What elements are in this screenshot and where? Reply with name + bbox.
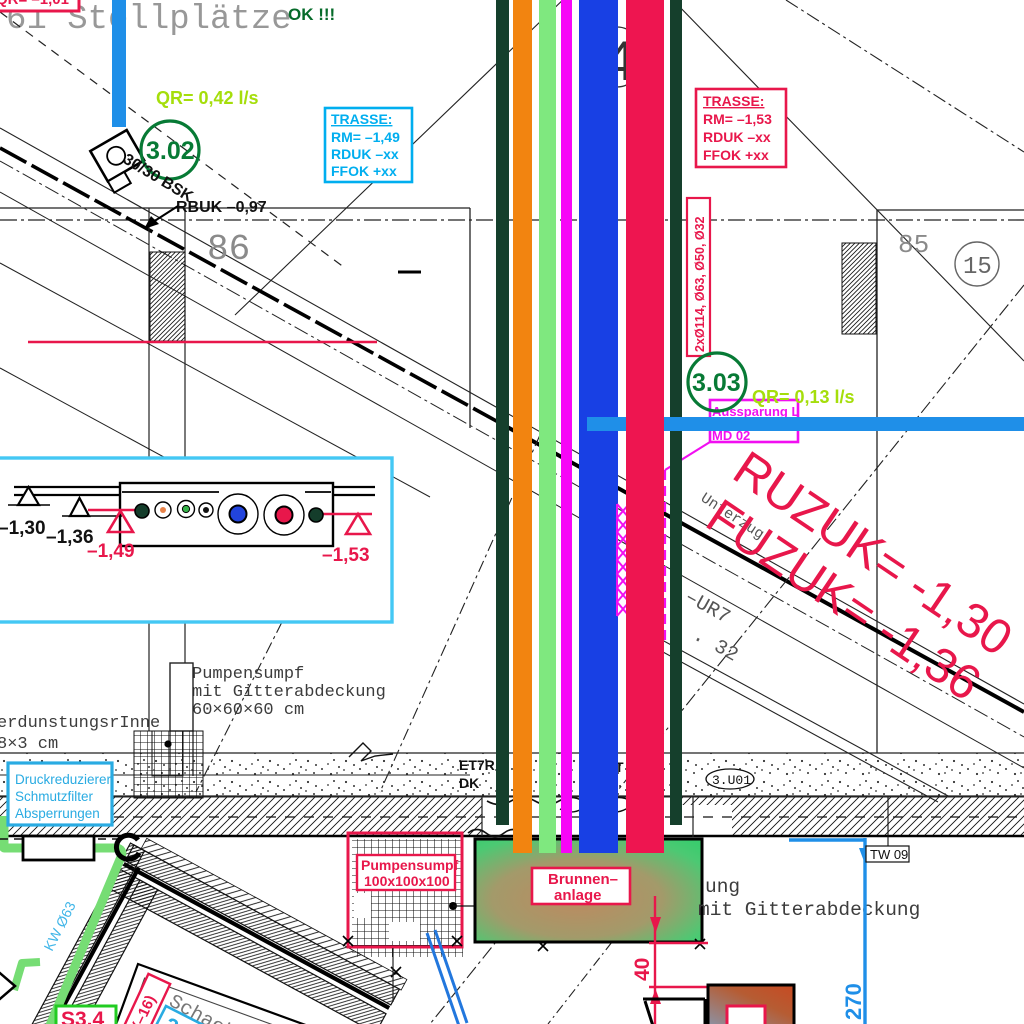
svg-text:TRASSE:: TRASSE: [331, 111, 392, 127]
svg-text:3.02: 3.02 [146, 137, 195, 165]
svg-text:–1,49: –1,49 [87, 541, 135, 562]
svg-text:RM= –1,53: RM= –1,53 [703, 111, 772, 127]
svg-text:–1,53: –1,53 [322, 545, 370, 566]
svg-text:QR= 0,42 l/s: QR= 0,42 l/s [156, 88, 259, 108]
svg-text:FFOK +xx: FFOK +xx [331, 163, 397, 179]
svg-text:TRASSE:: TRASSE: [703, 93, 764, 109]
svg-text:Brunnen–: Brunnen– [548, 871, 618, 888]
svg-text:3.U01: 3.U01 [712, 773, 751, 788]
svg-text:anlage: anlage [554, 887, 602, 904]
svg-text:Pumpensumpf: Pumpensumpf [361, 857, 459, 873]
svg-text:TW 09: TW 09 [870, 847, 908, 862]
svg-text:270: 270 [841, 983, 866, 1020]
svg-text:FFOK +xx: FFOK +xx [703, 147, 769, 163]
svg-text:Pumpensumpf: Pumpensumpf [192, 665, 304, 684]
svg-text:mit Gitterabdeckung: mit Gitterabdeckung [192, 683, 386, 702]
svg-text:erdunstungsrInne: erdunstungsrInne [0, 714, 160, 733]
svg-text:RDUK –xx: RDUK –xx [703, 129, 771, 145]
svg-text:S3.4: S3.4 [61, 1008, 105, 1024]
svg-text:15: 15 [963, 254, 992, 281]
svg-text:DK: DK [459, 775, 479, 791]
svg-text:RBUK –0,97: RBUK –0,97 [176, 199, 267, 216]
svg-text:RDUK –xx: RDUK –xx [331, 146, 399, 162]
svg-text:100x100x100: 100x100x100 [364, 873, 450, 889]
svg-text:Druckreduzierer: Druckreduzierer [15, 772, 112, 787]
svg-text:2xØ114, Ø63, Ø50, Ø32: 2xØ114, Ø63, Ø50, Ø32 [693, 216, 707, 352]
svg-text:Absperrungen: Absperrungen [15, 806, 100, 821]
svg-text:8×3 cm: 8×3 cm [0, 735, 58, 754]
svg-text:OK !!!: OK !!! [288, 5, 335, 24]
svg-text:QR= 0,13 l/s: QR= 0,13 l/s [752, 387, 855, 407]
svg-text:86: 86 [207, 229, 250, 270]
svg-text:–1,30: –1,30 [0, 518, 46, 539]
svg-text:85: 85 [898, 230, 929, 260]
svg-text:40: 40 [631, 958, 654, 981]
svg-text:3.03: 3.03 [692, 369, 741, 397]
svg-text:60×60×60 cm: 60×60×60 cm [192, 701, 304, 720]
svg-text:RM= –1,49: RM= –1,49 [331, 129, 400, 145]
svg-text:mit Gitterabdeckung: mit Gitterabdeckung [698, 899, 920, 921]
svg-text:Schmutzfilter: Schmutzfilter [15, 789, 94, 804]
svg-text:QR= –1,01: QR= –1,01 [0, 0, 69, 8]
svg-text:ung: ung [705, 876, 740, 898]
